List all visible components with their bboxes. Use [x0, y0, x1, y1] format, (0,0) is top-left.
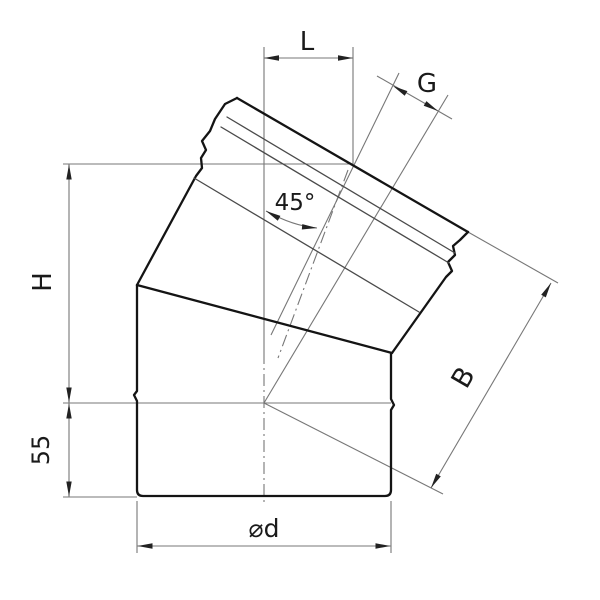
- label-angle-45: 45°: [275, 190, 316, 216]
- arrow-l-left: [264, 55, 279, 60]
- crimp-seam-line-2: [221, 127, 449, 263]
- dimension-lines: [69, 58, 551, 546]
- label-dimension-b: B: [446, 362, 482, 394]
- extension-line-g-right: [264, 95, 448, 403]
- label-dimension-h: H: [28, 272, 58, 292]
- arrow-angle-right: [302, 224, 317, 229]
- arrow-55-top: [66, 404, 71, 419]
- drawing-canvas: L G 45° H B 55 ⌀d: [0, 0, 600, 600]
- pipe-top-left-wall: [137, 98, 237, 285]
- elbow-technical-drawing: L G 45° H B 55 ⌀d: [0, 0, 600, 600]
- label-dimension-g: G: [417, 69, 437, 99]
- label-dimension-55: 55: [27, 435, 55, 466]
- arrow-h-top: [66, 165, 71, 180]
- arrow-h-bottom: [66, 388, 71, 403]
- label-dimension-l: L: [300, 27, 315, 57]
- arrow-b-bottom: [431, 474, 441, 488]
- dimension-arrows: [66, 55, 551, 548]
- extension-line-b-bottom: [264, 403, 443, 494]
- pipe-top-right-wall: [392, 232, 468, 353]
- arrow-diameter-right: [376, 543, 391, 548]
- dimension-labels: L G 45° H B 55 ⌀d: [27, 27, 482, 543]
- label-dimension-diameter: ⌀d: [249, 514, 280, 543]
- arrow-55-bottom: [66, 482, 71, 497]
- arrow-b-top: [541, 283, 551, 297]
- arrow-g-right: [424, 101, 438, 111]
- dimension-line-g: [377, 76, 452, 119]
- arrow-l-right: [338, 55, 353, 60]
- arrow-diameter-left: [138, 543, 153, 548]
- crimp-seam-line-1: [227, 117, 455, 253]
- arrow-g-left: [393, 86, 407, 96]
- extension-line-b-top: [468, 232, 558, 283]
- dimension-line-b: [431, 283, 551, 488]
